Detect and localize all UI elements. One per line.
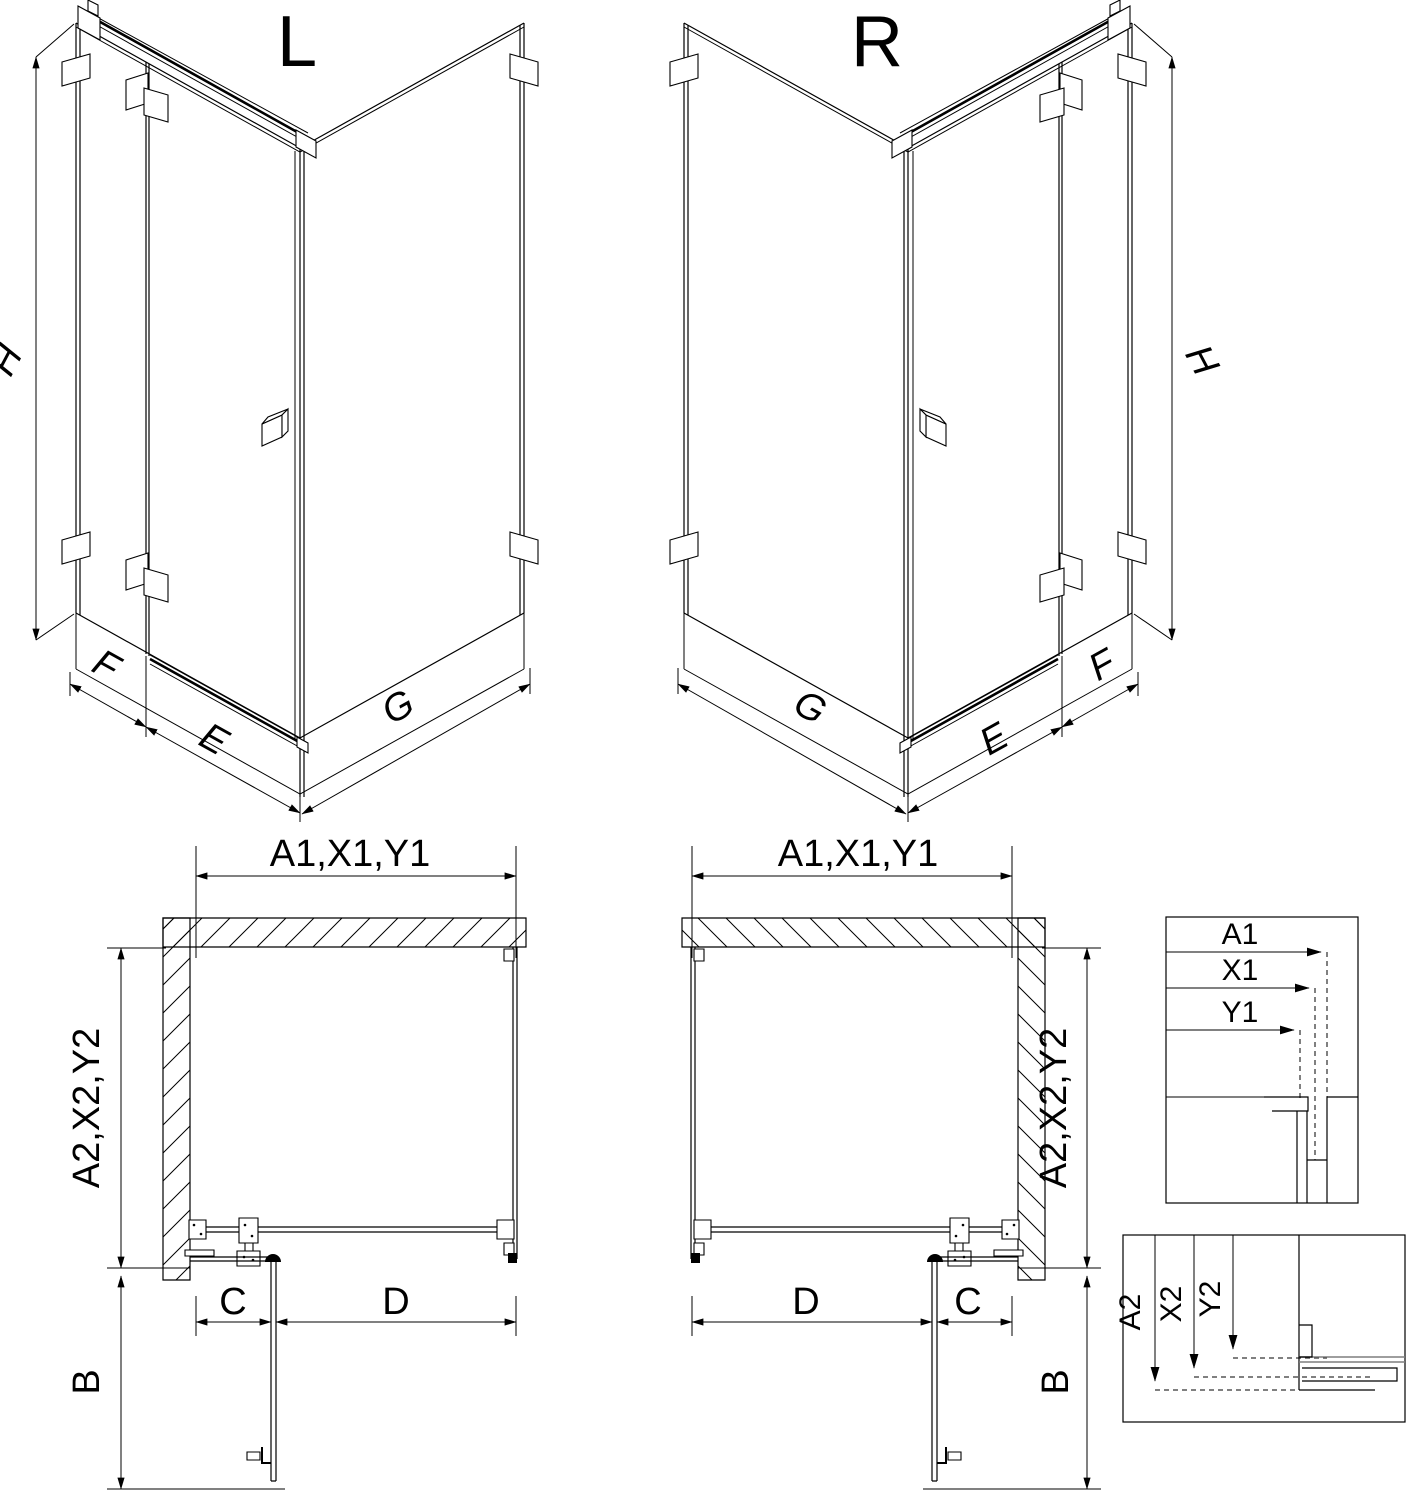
plan-left-width-label: A1,X1,Y1	[270, 833, 431, 875]
iso-left-return-panel-label: G	[375, 682, 421, 733]
detail-depth-label-y2: Y2	[1194, 1281, 1227, 1318]
plan-right-width-label: A1,X1,Y1	[778, 833, 939, 875]
iso-view-right-linework	[670, 0, 1172, 822]
plan-right-door-segment-label: D	[792, 1281, 819, 1323]
detail-width-label-y1: Y1	[1222, 996, 1259, 1029]
plan-left-door-segment-label: D	[382, 1281, 409, 1323]
plan-left-door-swing-label: B	[66, 1369, 108, 1394]
shower-enclosure-dimension-drawing: L H F E G R H G E F A1,X1,Y1 A2,X2,Y2 C …	[0, 0, 1416, 1499]
iso-left-side-panel-label: F	[85, 642, 127, 691]
iso-view-left-linework	[36, 0, 538, 822]
technical-drawing: L H F E G R H G E F A1,X1,Y1 A2,X2,Y2 C …	[0, 0, 1416, 1499]
iso-right-side-panel-label: F	[1082, 641, 1124, 690]
detail-width-label-a1: A1	[1222, 918, 1259, 951]
plan-right-fixed-segment-label: C	[954, 1281, 981, 1323]
detail-depth-box	[1123, 1235, 1405, 1422]
detail-width-label-x1: X1	[1222, 954, 1259, 987]
plan-view-left-linework	[107, 846, 526, 1489]
detail-depth-label-a2: A2	[1114, 1294, 1147, 1331]
plan-right-door-swing-label: B	[1035, 1369, 1077, 1394]
iso-left-height-label: H	[0, 338, 32, 382]
iso-right-variant-label: R	[851, 2, 903, 82]
iso-left-variant-label: L	[277, 2, 317, 82]
plan-left-depth-label: A2,X2,Y2	[66, 1028, 108, 1189]
detail-depth-label-x2: X2	[1155, 1286, 1188, 1323]
iso-right-height-label: H	[1177, 338, 1227, 382]
iso-right-return-panel-label: G	[787, 682, 833, 733]
detail-width-box	[1166, 917, 1358, 1203]
plan-left-fixed-segment-label: C	[219, 1281, 246, 1323]
plan-right-depth-label: A2,X2,Y2	[1033, 1028, 1075, 1189]
